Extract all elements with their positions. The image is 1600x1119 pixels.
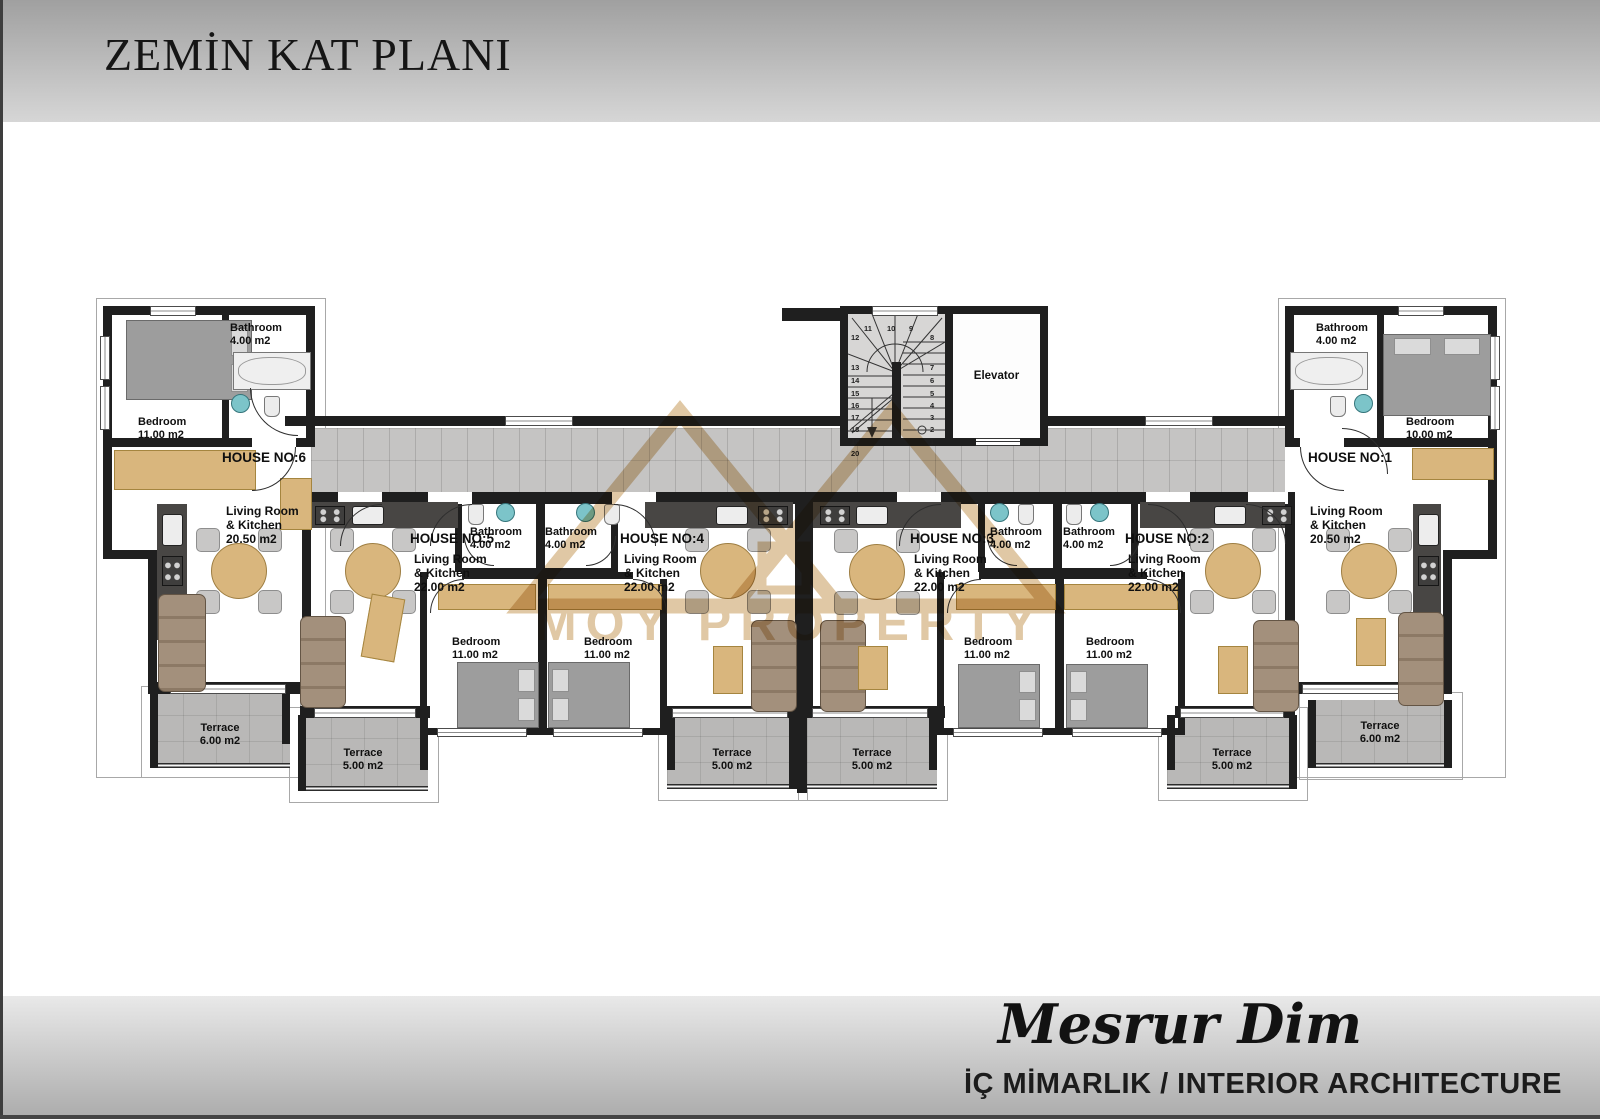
stair-number: 11 — [864, 325, 872, 333]
chair — [258, 590, 282, 614]
wall — [797, 715, 807, 793]
window — [1490, 386, 1500, 430]
window — [1398, 306, 1444, 316]
window — [505, 416, 573, 426]
stair-number: 3 — [930, 414, 934, 422]
stair-number: 1 — [930, 438, 934, 446]
window — [1145, 416, 1213, 426]
stair-number: 9 — [909, 325, 913, 333]
coffee-table — [1356, 618, 1386, 666]
sofa — [751, 620, 797, 712]
label-h4-living: Living Room & Kitchen 22.00 m2 — [624, 552, 697, 594]
terrace-railing — [298, 786, 428, 791]
signature-subtitle: İÇ MİMARLIK / INTERIOR ARCHITECTURE — [890, 1068, 1562, 1101]
dining-table — [345, 543, 401, 599]
stair-number: 17 — [851, 414, 859, 422]
label-h6-terrace: Terrace 6.00 m2 — [160, 722, 280, 748]
label-h5-bedroom: Bedroom 11.00 m2 — [452, 636, 500, 662]
wall — [103, 438, 112, 559]
label-h5-terrace: Terrace 5.00 m2 — [303, 747, 423, 773]
wall — [1053, 492, 1062, 577]
stove-icon — [758, 506, 788, 525]
wall — [782, 308, 840, 321]
elevator-door — [976, 438, 1020, 446]
bed — [1383, 334, 1491, 416]
label-h2-terrace: Terrace 5.00 m2 — [1172, 747, 1292, 773]
chair — [1252, 590, 1276, 614]
kitchen-sink-icon — [716, 506, 748, 525]
bed — [457, 662, 539, 728]
window — [100, 336, 110, 380]
coffee-table — [713, 646, 743, 694]
bath-sink-icon — [496, 503, 515, 522]
stair-number: 14 — [851, 377, 859, 385]
label-h1-living: Living Room & Kitchen 20.50 m2 — [1310, 504, 1383, 546]
stair-number: 19 — [851, 438, 859, 446]
stair-number: 8 — [930, 334, 934, 342]
bath-sink-icon — [990, 503, 1009, 522]
bed — [548, 662, 630, 728]
terrace-railing — [1308, 763, 1452, 768]
label-h2-bathroom: Bathroom 4.00 m2 — [1063, 526, 1115, 552]
door-gap — [1300, 438, 1344, 447]
label-h5-bathroom: Bathroom 4.00 m2 — [470, 526, 522, 552]
window — [437, 728, 527, 737]
dining-table — [700, 543, 756, 599]
elevator-label: Elevator — [974, 370, 1019, 382]
stair-number: 2 — [930, 426, 934, 434]
sofa — [158, 594, 206, 692]
window — [553, 728, 643, 737]
wall — [150, 694, 158, 768]
dining-table — [211, 543, 267, 599]
wall — [978, 568, 1138, 575]
wall — [148, 550, 157, 694]
wall — [1308, 700, 1316, 768]
chair — [196, 528, 220, 552]
toilet-icon — [1330, 396, 1346, 417]
stair-number: 12 — [851, 334, 859, 342]
label-h4-house: HOUSE NO:4 — [620, 531, 704, 547]
window — [953, 728, 1043, 737]
chair — [330, 590, 354, 614]
stair-number: 4 — [930, 402, 934, 410]
signature: Mesrur Dim — [960, 992, 1400, 1056]
stair-number: 10 — [887, 325, 895, 333]
window — [150, 306, 196, 316]
label-h6-bathroom: Bathroom 4.00 m2 — [230, 322, 282, 348]
terrace-railing — [667, 784, 797, 789]
label-h2-house: HOUSE NO:2 — [1125, 531, 1209, 547]
kitchen-sink-icon — [856, 506, 888, 525]
label-h6-living: Living Room & Kitchen 20.50 m2 — [226, 504, 299, 546]
label-h3-bedroom: Bedroom 11.00 m2 — [964, 636, 1012, 662]
coffee-table — [858, 646, 888, 690]
label-h3-house: HOUSE NO:3 — [910, 531, 994, 547]
chair — [1388, 528, 1412, 552]
window — [872, 306, 938, 316]
coffee-table — [1218, 646, 1248, 694]
toilet-icon — [1018, 504, 1034, 525]
stair-number: 18 — [851, 426, 859, 434]
stair-number: 5 — [930, 390, 934, 398]
chair — [896, 591, 920, 615]
elevator: Elevator — [953, 314, 1040, 438]
label-h6-house: HOUSE NO:6 — [222, 450, 306, 466]
label-h4-bathroom: Bathroom 4.00 m2 — [545, 526, 597, 552]
label-h3-living: Living Room & Kitchen 22.00 m2 — [914, 552, 987, 594]
dining-table — [849, 544, 905, 600]
bathtub — [1290, 352, 1368, 390]
bench — [1412, 448, 1494, 480]
door-gap — [252, 438, 296, 447]
dining-table — [1205, 543, 1261, 599]
chair — [747, 528, 771, 552]
wall — [1443, 550, 1452, 694]
label-h6-bedroom: Bedroom 11.00 m2 — [138, 416, 186, 442]
stair-number: 13 — [851, 364, 859, 372]
wall — [945, 314, 953, 438]
stair-number: 20 — [851, 450, 859, 458]
corridor-floor — [311, 428, 1285, 492]
chair — [747, 590, 771, 614]
stove-icon — [162, 556, 183, 586]
label-h1-house: HOUSE NO:1 — [1308, 450, 1392, 466]
chair — [834, 591, 858, 615]
kitchen-sink-icon — [1214, 506, 1246, 525]
bath-sink-icon — [1354, 394, 1373, 413]
stair-number: 16 — [851, 402, 859, 410]
bed — [1066, 664, 1148, 728]
stove-icon — [1418, 556, 1439, 586]
label-h2-bedroom: Bedroom 11.00 m2 — [1086, 636, 1134, 662]
label-h2-living: Living Room & Kitchen 22.00 m2 — [1128, 552, 1201, 594]
window — [314, 708, 416, 718]
bath-sink-icon — [1090, 503, 1109, 522]
toilet-icon — [1066, 504, 1082, 525]
label-h4-bedroom: Bedroom 11.00 m2 — [584, 636, 632, 662]
stair-number: 6 — [930, 377, 934, 385]
chair — [1326, 590, 1350, 614]
label-h3-bathroom: Bathroom 4.00 m2 — [990, 526, 1042, 552]
terrace-railing — [150, 763, 290, 768]
stair-number: 7 — [930, 364, 934, 372]
label-h5-living: Living Room & Kitchen 22.00 m2 — [414, 552, 487, 594]
wall — [795, 492, 813, 718]
label-h3-terrace: Terrace 5.00 m2 — [812, 747, 932, 773]
window — [1072, 728, 1162, 737]
stove-icon — [820, 506, 850, 525]
wall — [282, 694, 290, 744]
label-h1-bedroom: Bedroom 10.00 m2 — [1406, 416, 1454, 442]
chair — [1388, 590, 1412, 614]
label-h4-terrace: Terrace 5.00 m2 — [672, 747, 792, 773]
label-h1-bathroom: Bathroom 4.00 m2 — [1316, 322, 1368, 348]
wall — [536, 492, 545, 577]
stove-icon — [315, 506, 345, 525]
window — [1490, 336, 1500, 380]
chair — [834, 529, 858, 553]
kitchen-sink-icon — [162, 514, 183, 546]
sofa — [1398, 612, 1444, 706]
floor-plan: Elevator — [0, 0, 1600, 1119]
bed — [958, 664, 1040, 728]
bath-sink-icon — [231, 394, 250, 413]
kitchen-sink-icon — [1418, 514, 1439, 546]
stair-number: 15 — [851, 390, 859, 398]
sofa — [1253, 620, 1299, 712]
bathtub — [233, 352, 311, 390]
terrace-railing — [807, 784, 937, 789]
window — [100, 386, 110, 430]
wall — [1444, 700, 1452, 768]
terrace-railing — [1167, 784, 1297, 789]
sofa — [300, 616, 346, 708]
label-h1-terrace: Terrace 6.00 m2 — [1320, 720, 1440, 746]
bath-sink-icon — [576, 503, 595, 522]
dining-table — [1341, 543, 1397, 599]
